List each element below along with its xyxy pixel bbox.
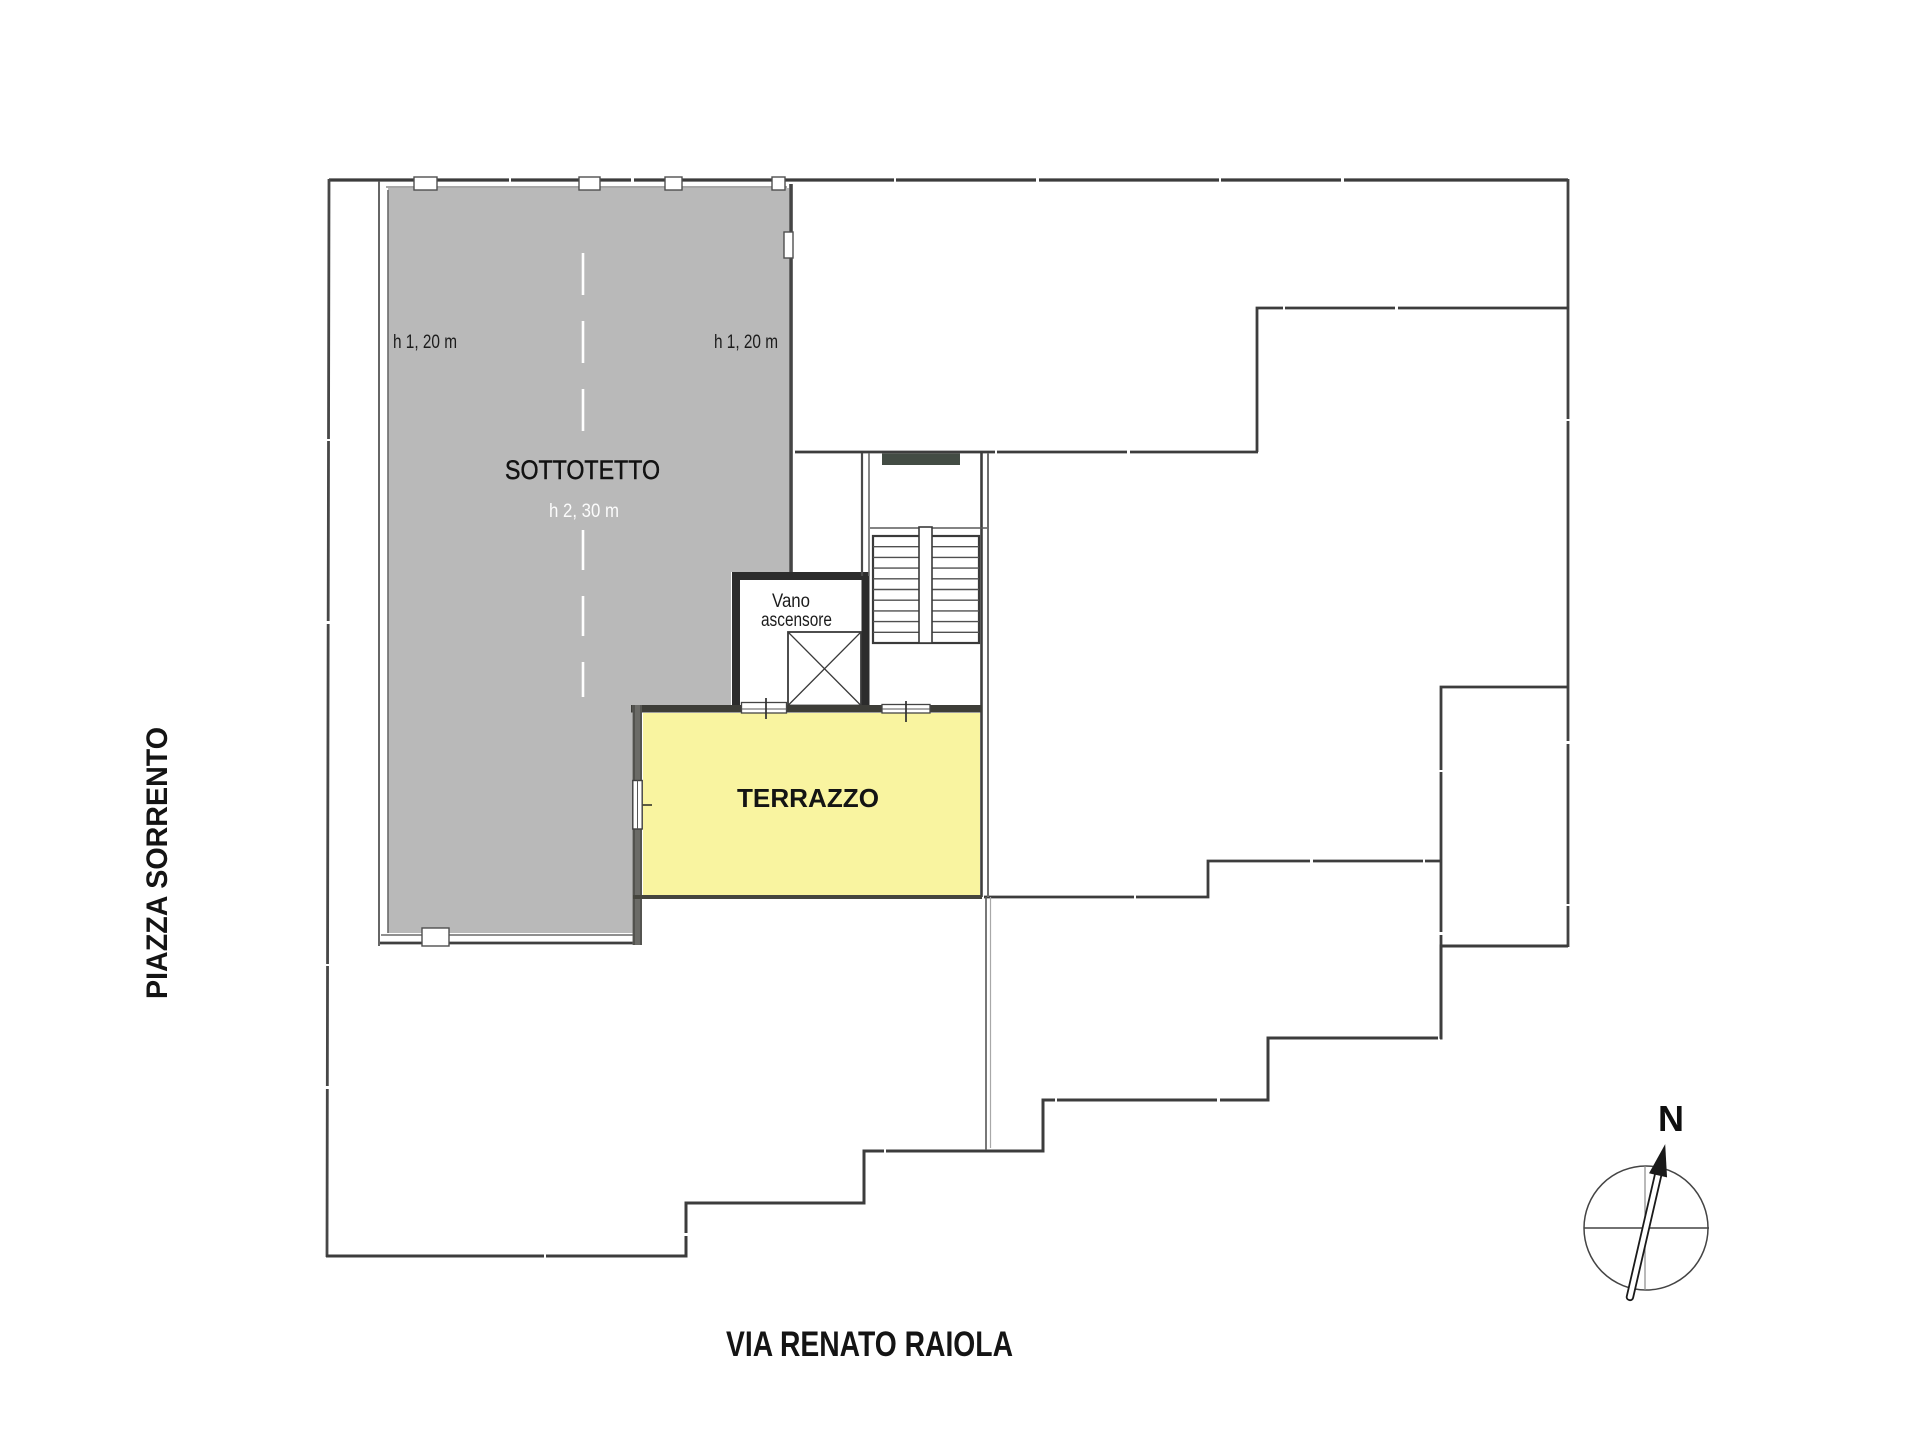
svg-text:h 1, 20 m: h 1, 20 m — [714, 332, 778, 353]
svg-text:Vano: Vano — [772, 591, 810, 612]
svg-text:h 2, 30 m: h 2, 30 m — [549, 501, 619, 522]
svg-text:VIA RENATO RAIOLA: VIA RENATO RAIOLA — [726, 1325, 1013, 1364]
svg-text:TERRAZZO: TERRAZZO — [737, 783, 879, 813]
svg-text:h 1, 20 m: h 1, 20 m — [393, 332, 457, 353]
svg-text:PIAZZA SORRENTO: PIAZZA SORRENTO — [141, 727, 174, 999]
svg-text:ascensore: ascensore — [761, 610, 832, 631]
svg-text:N: N — [1658, 1098, 1684, 1139]
svg-text:SOTTOTETTO: SOTTOTETTO — [505, 455, 660, 485]
